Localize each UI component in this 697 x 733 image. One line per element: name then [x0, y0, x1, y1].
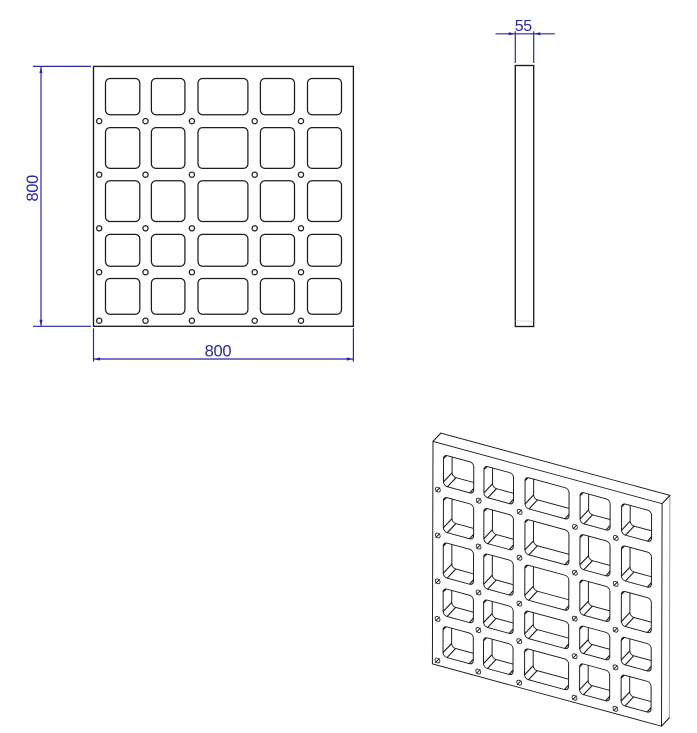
- svg-text:55: 55: [515, 18, 532, 35]
- svg-text:800: 800: [24, 175, 42, 202]
- svg-text:800: 800: [205, 342, 232, 360]
